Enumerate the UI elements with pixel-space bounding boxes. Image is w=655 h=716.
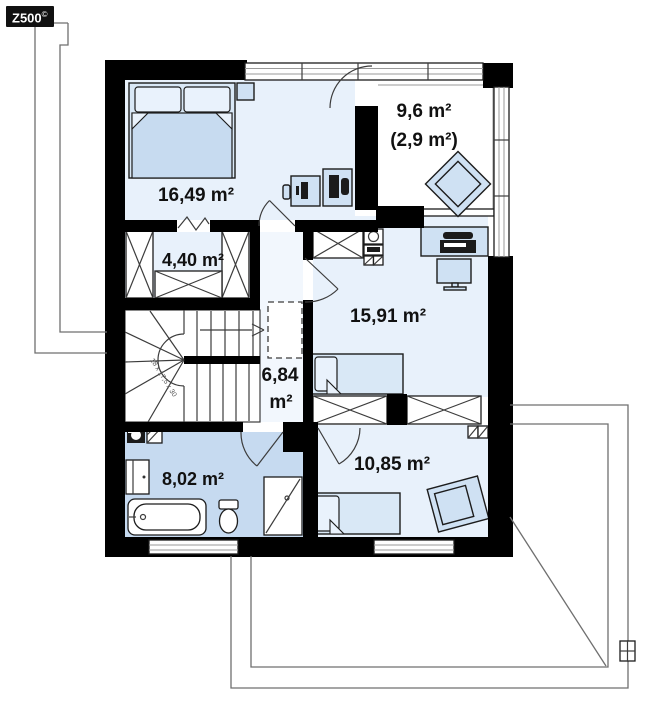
staircase: 18 x 17,5 x 30 [125,310,264,422]
boiler-slot-icon [367,247,380,252]
wall-top [105,60,247,80]
printer-top-icon [443,232,473,239]
label-attic-space-reduced: (2,9 m²) [390,130,458,151]
pillow-icon [315,357,337,391]
blanket-icon [132,113,232,178]
label-attic-space: 9,6 m² [397,101,452,122]
label-bathroom: 8,02 m² [162,469,224,489]
monitor-base-icon [444,287,466,290]
wall-bedroom2-left [303,300,313,425]
label-hall-value: 6,84 [262,365,299,386]
label-bedroom-2: 15,91 m² [350,306,426,327]
computer-monitor-icon [437,259,471,283]
speaker-icon [341,178,349,195]
window-band-right [494,87,509,257]
window-bathroom [149,540,238,554]
wall-bedroom3-left [303,422,318,537]
wall-bedroom2-left [303,220,313,260]
wall-closet-stub [387,394,407,425]
roof-diagonal-line [510,517,606,666]
copyright-mark: © [42,10,48,19]
nightstand-icon [237,83,254,100]
brand-logo: Z500© [6,6,54,27]
cabinet-knob-icon [143,476,146,479]
toilet-bowl-icon [220,509,238,533]
wall-bedroom1-bottom [125,220,177,232]
wall-bedroom2-top [376,206,424,228]
printer-slot-icon [444,243,466,247]
label-bedroom-3: 10,85 m² [354,454,430,475]
wall-stairs-top [125,298,250,310]
washbasin-cabinet-icon [126,460,149,494]
pillow-icon [184,87,230,112]
wall-door-jamb [283,422,303,452]
stair-well [125,310,260,422]
brand-logo-text: Z500 [12,10,42,25]
wall-right [488,256,513,557]
roof-outline-left-outer [35,23,107,353]
floor-plan-drawing: 18 x 17,5 x 30 [0,0,655,716]
window-band-top [245,63,483,80]
bathtub-basin-icon [134,504,200,530]
window-bedroom3 [374,540,454,554]
floor-plan-page: 18 x 17,5 x 30 [0,0,655,716]
desk-chair-icon [283,185,290,199]
wall-attic-divider [355,106,378,210]
toilet-tank-icon [219,500,238,509]
pc-tower-icon [329,175,339,198]
wall-bathroom-top [125,422,243,432]
skylight-dashed-outline [268,302,302,358]
wall-hall-left [250,220,260,310]
wall-corner-pillar [483,63,513,88]
label-wardrobe: 4,40 m² [162,250,224,270]
monitor-glyph-icon [301,182,308,199]
pillow-icon [135,87,181,112]
stair-landing-edge [184,356,260,364]
label-hall-unit: m² [269,392,292,413]
label-bedroom-1: 16,49 m² [158,185,234,206]
roof-outline-left-inner [60,23,107,332]
wall-left [105,60,125,557]
monitor-stand-icon [296,186,299,195]
